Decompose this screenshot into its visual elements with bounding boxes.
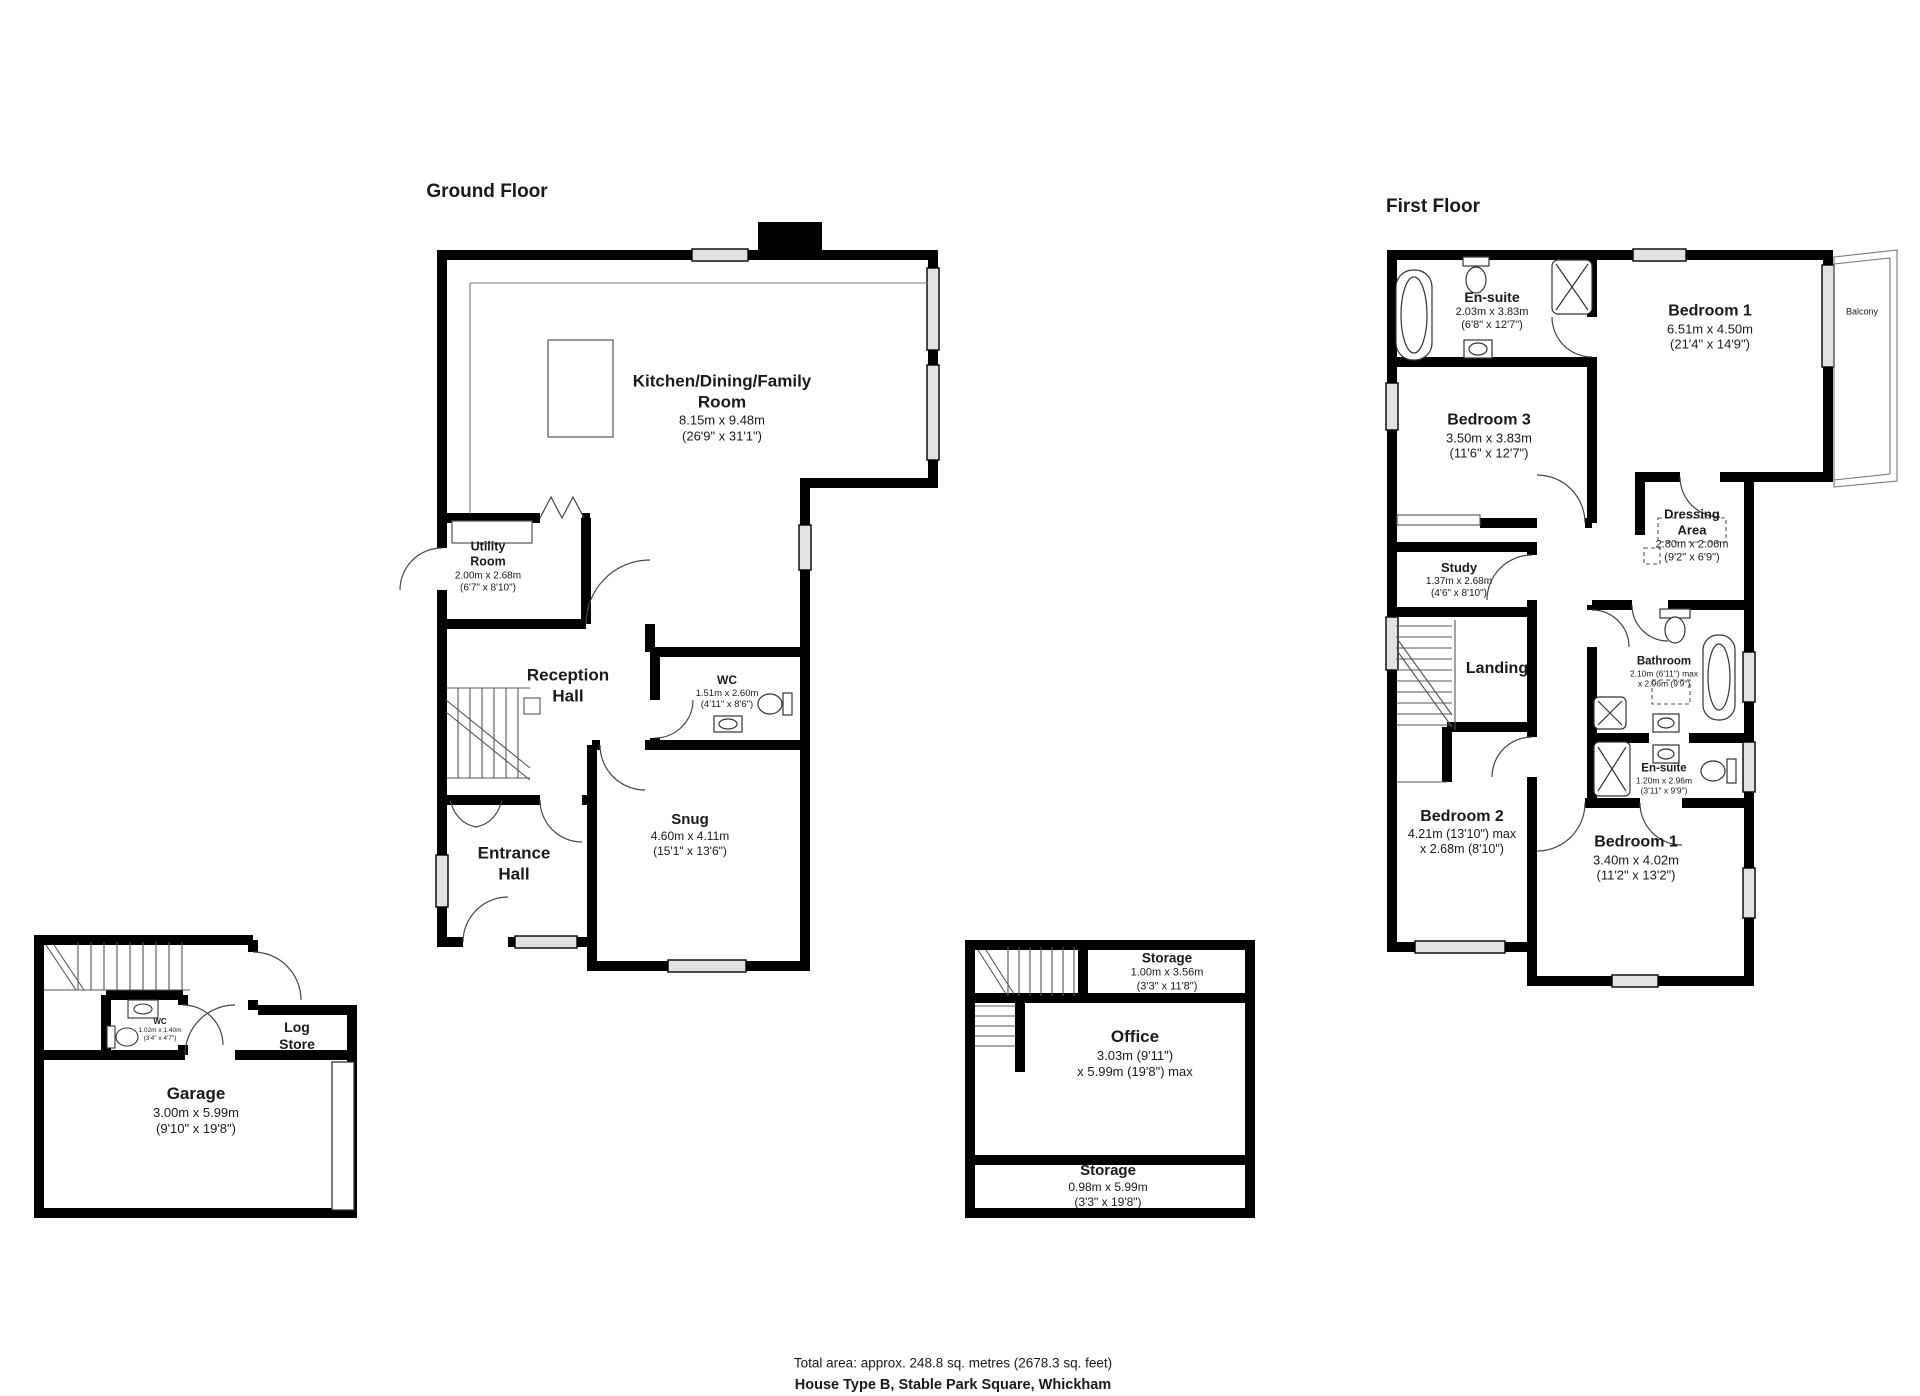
door-arc: [540, 800, 582, 842]
window: [515, 936, 577, 948]
room-dims: 3.00m x 5.99m: [153, 1105, 239, 1121]
sink-icon: [719, 719, 737, 729]
room-dims: x 5.99m (19'8") max: [1077, 1063, 1192, 1079]
room-name: Storage: [1068, 1162, 1147, 1180]
window: [1415, 941, 1505, 953]
window: [927, 268, 939, 350]
room-label-entrance-hall: Entrance Hall: [478, 843, 551, 884]
door-arc: [463, 897, 508, 942]
sink-icon: [1469, 343, 1487, 355]
room-dims: (4'6" x 8'10"): [1426, 588, 1492, 600]
bifold-door: [540, 497, 584, 518]
house-type-text: House Type B, Stable Park Square, Whickh…: [795, 1377, 1111, 1393]
room-label-dressing-area: Dressing Area 2.80m x 2.06m (9'2" x 6'9"…: [1656, 507, 1729, 566]
window: [1386, 383, 1398, 430]
room-name: Hall: [478, 864, 551, 885]
floorplan-page: Ground Floor First Floor Kitchen/Dining/…: [0, 0, 1920, 1396]
room-label-ensuite-mid: En-suite 1.20m x 2.96m (3'11" x 9'9"): [1636, 762, 1692, 797]
door-arc: [1592, 610, 1629, 647]
ground-floor-title: Ground Floor: [426, 181, 547, 203]
door-arc: [1487, 555, 1532, 600]
room-dims: 1.20m x 2.96m: [1636, 776, 1692, 786]
room-name: Snug: [651, 811, 729, 829]
room-label-log-store: Log Store: [279, 1019, 315, 1053]
room-dims: 3.03m (9'11"): [1077, 1048, 1192, 1064]
door-arc: [1537, 803, 1585, 851]
chimney-notch: [758, 222, 822, 258]
room-name: Bedroom 1: [1667, 301, 1753, 321]
room-dims: (11'2" x 13'2"): [1593, 868, 1679, 884]
room-name: Bedroom 2: [1408, 807, 1516, 827]
toilet-icon: [758, 694, 782, 714]
sink-icon: [1658, 749, 1674, 759]
room-dims: (15'1" x 13'6"): [651, 844, 729, 859]
total-area-text: Total area: approx. 248.8 sq. metres (26…: [794, 1356, 1112, 1371]
room-name: Reception: [527, 665, 609, 686]
room-name: Bedroom 1: [1593, 832, 1679, 852]
room-label-office: Office 3.03m (9'11") x 5.99m (19'8") max: [1077, 1027, 1192, 1079]
room-name: Bathroom: [1630, 655, 1698, 669]
room-name: En-suite: [1456, 289, 1529, 306]
room-name: Room: [633, 392, 812, 413]
sink-icon: [1658, 718, 1674, 728]
stairs-icon: [44, 942, 190, 990]
room-dims: 4.21m (13'10") max: [1408, 827, 1516, 842]
room-name: Landing: [1466, 659, 1528, 679]
wardrobe: [1397, 515, 1480, 525]
door-arc: [183, 1005, 223, 1045]
bath-icon: [1401, 277, 1427, 353]
window: [1743, 742, 1755, 792]
room-label-bedroom2: Bedroom 2 4.21m (13'10") max x 2.68m (8'…: [1408, 807, 1516, 857]
room-dims: 8.15m x 9.48m: [633, 413, 812, 429]
room-dims: (11'6" x 12'7"): [1446, 446, 1532, 462]
toilet-icon: [1463, 257, 1489, 266]
room-name: Balcony: [1846, 307, 1878, 318]
room-label-garage-wc: WC 1.02m x 1.40m (3'4" x 4'7"): [139, 1017, 182, 1043]
room-dims: (3'4" x 4'7"): [139, 1035, 182, 1043]
room-name: Storage: [1131, 950, 1204, 966]
window: [1633, 249, 1686, 261]
room-name: Kitchen/Dining/Family: [633, 371, 812, 392]
room-label-bathroom: Bathroom 2.10m (6'11") max x 2.96m (9'9"…: [1630, 655, 1698, 690]
room-label-utility: Utility Room 2.00m x 2.68m (6'7" x 8'10"…: [455, 540, 521, 595]
room-label-bedroom3: Bedroom 3 3.50m x 3.83m (11'6" x 12'7"): [1446, 410, 1532, 461]
room-dims: x 2.96m (9'9"): [1630, 679, 1698, 689]
room-name: Entrance: [478, 843, 551, 864]
room-label-storage-top: Storage 1.00m x 3.56m (3'3" x 11'8"): [1131, 950, 1204, 993]
door-arc: [655, 700, 693, 738]
room-name: Log: [279, 1019, 315, 1036]
room-dims: 0.98m x 5.99m: [1068, 1181, 1147, 1196]
floor-plan-svg: [0, 0, 1920, 1396]
room-dims: 4.60m x 4.11m: [651, 830, 729, 845]
room-dims: 1.51m x 2.60m: [696, 688, 759, 700]
room-label-snug: Snug 4.60m x 4.11m (15'1" x 13'6"): [651, 811, 729, 859]
sink-icon: [134, 1004, 152, 1014]
room-name: Utility: [455, 540, 521, 555]
room-dims: 1.02m x 1.40m: [139, 1027, 182, 1035]
toilet-icon: [1701, 761, 1725, 781]
room-name: Office: [1077, 1027, 1192, 1048]
room-dims: (9'10" x 19'8"): [153, 1120, 239, 1136]
room-dims: 2.10m (6'11") max: [1630, 669, 1698, 679]
room-label-reception-hall: Reception Hall: [527, 665, 609, 706]
window: [927, 365, 939, 460]
room-dims: 3.50m x 3.83m: [1446, 430, 1532, 446]
room-label-ensuite-top: En-suite 2.03m x 3.83m (6'8" x 12'7"): [1456, 289, 1529, 333]
window: [1822, 265, 1834, 367]
room-name: Hall: [527, 686, 609, 707]
toilet-icon: [116, 1028, 138, 1046]
first-floor-title: First Floor: [1386, 196, 1480, 218]
room-label-landing: Landing: [1466, 659, 1528, 679]
kitchen-island: [548, 340, 613, 437]
room-name: En-suite: [1636, 762, 1692, 776]
room-label-study: Study 1.37m x 2.68m (4'6" x 8'10"): [1426, 560, 1492, 600]
door-arc: [185, 1005, 235, 1055]
room-name: Area: [1656, 523, 1729, 539]
window: [692, 249, 748, 261]
room-dims: (6'7" x 8'10"): [455, 582, 521, 594]
toilet-icon: [783, 693, 792, 715]
room-name: Garage: [153, 1084, 239, 1105]
garage-door: [332, 1062, 354, 1210]
room-label-bedroom1-top: Bedroom 1 6.51m x 4.50m (21'4" x 14'9"): [1667, 301, 1753, 352]
room-dims: (4'11" x 8'6"): [696, 699, 759, 711]
door-arc: [1552, 317, 1592, 357]
room-dims: (26'9" x 31'1"): [633, 429, 812, 445]
window: [436, 855, 448, 907]
room-dims: 2.03m x 3.83m: [1456, 306, 1529, 319]
garage-plan: [39, 940, 354, 1213]
room-name: Room: [455, 555, 521, 570]
door-arc: [253, 952, 301, 1000]
room-name: WC: [696, 673, 759, 688]
window: [1743, 868, 1755, 918]
room-name: Study: [1426, 560, 1492, 576]
door-arc: [1537, 475, 1585, 523]
door-arc: [1492, 737, 1532, 777]
bath-icon: [1708, 644, 1730, 710]
room-label-storage-bottom: Storage 0.98m x 5.99m (3'3" x 19'8"): [1068, 1162, 1147, 1210]
window: [1612, 975, 1658, 987]
room-name: Dressing: [1656, 507, 1729, 523]
room-name: Bedroom 3: [1446, 410, 1532, 430]
room-dims: 6.51m x 4.50m: [1667, 321, 1753, 337]
room-dims: (3'3" x 19'8"): [1068, 1195, 1147, 1210]
toilet-icon: [107, 1026, 115, 1048]
room-name: WC: [139, 1017, 182, 1027]
room-dims: (3'3" x 11'8"): [1131, 980, 1204, 993]
door-arc: [586, 560, 650, 624]
room-label-wc: WC 1.51m x 2.60m (4'11" x 8'6"): [696, 673, 759, 711]
door-arc: [400, 548, 442, 590]
room-dims: 3.40m x 4.02m: [1593, 852, 1679, 868]
room-dims: (9'2" x 6'9"): [1656, 552, 1729, 565]
stairs-icon: [446, 688, 540, 780]
room-dims: x 2.68m (8'10"): [1408, 842, 1516, 857]
room-dims: (3'11" x 9'9"): [1636, 786, 1692, 796]
window: [1386, 617, 1398, 670]
room-dims: 2.80m x 2.06m: [1656, 538, 1729, 551]
room-label-kitchen: Kitchen/Dining/Family Room 8.15m x 9.48m…: [633, 371, 812, 444]
window: [799, 525, 811, 570]
room-label-balcony: Balcony: [1846, 307, 1878, 318]
window: [1743, 652, 1755, 702]
window: [668, 960, 746, 972]
room-label-garage: Garage 3.00m x 5.99m (9'10" x 19'8"): [153, 1084, 239, 1136]
room-dims: (21'4" x 14'9"): [1667, 337, 1753, 353]
room-dims: 1.37m x 2.68m: [1426, 576, 1492, 588]
balcony: [1834, 250, 1897, 487]
door-arc: [600, 745, 645, 790]
room-dims: 1.00m x 3.56m: [1131, 967, 1204, 980]
room-dims: 2.00m x 2.68m: [455, 570, 521, 582]
room-name: Store: [279, 1036, 315, 1053]
garage-walls: [39, 940, 352, 1213]
toilet-icon: [1665, 617, 1685, 643]
room-dims: (6'8" x 12'7"): [1456, 320, 1529, 333]
room-label-bedroom1-bottom: Bedroom 1 3.40m x 4.02m (11'2" x 13'2"): [1593, 832, 1679, 883]
toilet-icon: [1727, 759, 1736, 783]
